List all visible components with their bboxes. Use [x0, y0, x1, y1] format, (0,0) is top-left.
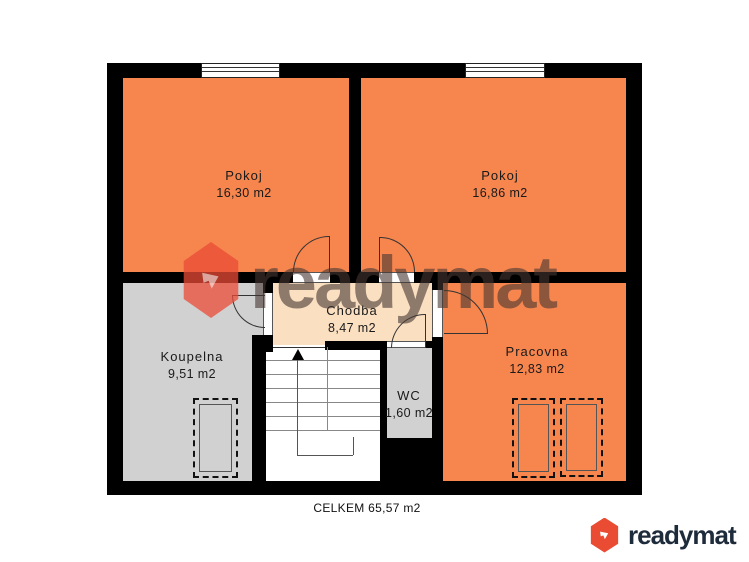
readymat-logo: readymat	[589, 515, 736, 555]
furniture-symbol-pracovna-2	[560, 398, 603, 477]
stair-step	[266, 360, 380, 361]
total-area-label: CELKEM 65,57 m2	[313, 501, 420, 515]
stairwell	[266, 347, 380, 481]
logo-text: readymat	[628, 520, 736, 551]
window-pane	[202, 67, 279, 72]
window-pokoj-1	[201, 63, 280, 78]
furniture-symbol-pracovna-1	[512, 398, 555, 478]
room-area: 16,86 m2	[472, 186, 527, 200]
wall-wc-door-right-stub	[425, 341, 432, 348]
wall-outer-bottom	[107, 481, 642, 495]
watermark-hexagon-glyph-icon	[194, 262, 228, 298]
logo-hexagon-icon	[589, 518, 620, 553]
room-area: 1,60 m2	[385, 406, 433, 420]
label-koupelna: Koupelna 9,51 m2	[161, 349, 224, 381]
stair-walk-line-vertical	[297, 352, 298, 455]
window-pane	[466, 67, 544, 72]
furniture-inner	[518, 404, 549, 472]
floor-plan: Pokoj 16,30 m2 Pokoj 16,86 m2 Chodba 8,4…	[0, 0, 749, 562]
stair-divider	[327, 347, 328, 430]
wall-chodba-left-stub-bottom	[263, 335, 273, 352]
stair-step	[266, 402, 380, 403]
stair-step	[266, 430, 380, 431]
door-leaf-pracovna	[444, 333, 488, 334]
bathtub-inner	[199, 404, 232, 472]
room-name: Koupelna	[161, 349, 224, 364]
stair-step	[266, 388, 380, 389]
bathtub-symbol	[193, 398, 238, 478]
room-area: 16,30 m2	[216, 186, 271, 200]
room-name: Pracovna	[506, 344, 569, 359]
stair-walk-line-bottom	[297, 455, 353, 456]
wall-stairs-top-stub	[325, 341, 382, 350]
room-name: Pokoj	[216, 168, 271, 183]
watermark-text: readymat	[250, 243, 555, 323]
stair-direction-arrow-icon	[292, 349, 304, 360]
room-name: WC	[385, 388, 433, 403]
label-pokoj-2: Pokoj 16,86 m2	[472, 168, 527, 200]
room-area: 9,51 m2	[161, 367, 224, 381]
label-wc: WC 1,60 m2	[385, 388, 433, 420]
stair-step	[266, 374, 380, 375]
stair-walk-line-return	[353, 437, 354, 455]
room-name: Pokoj	[472, 168, 527, 183]
label-pokoj-1: Pokoj 16,30 m2	[216, 168, 271, 200]
room-area: 12,83 m2	[506, 362, 569, 376]
logo-hexagon-glyph-icon	[596, 527, 613, 544]
window-pokoj-2	[465, 63, 545, 78]
wall-koupelna-stairs	[252, 335, 266, 481]
stair-step	[266, 416, 380, 417]
label-pracovna: Pracovna 12,83 m2	[506, 344, 569, 376]
wall-outer-top	[107, 63, 642, 78]
wall-below-wc	[387, 438, 432, 481]
furniture-inner	[566, 404, 597, 471]
